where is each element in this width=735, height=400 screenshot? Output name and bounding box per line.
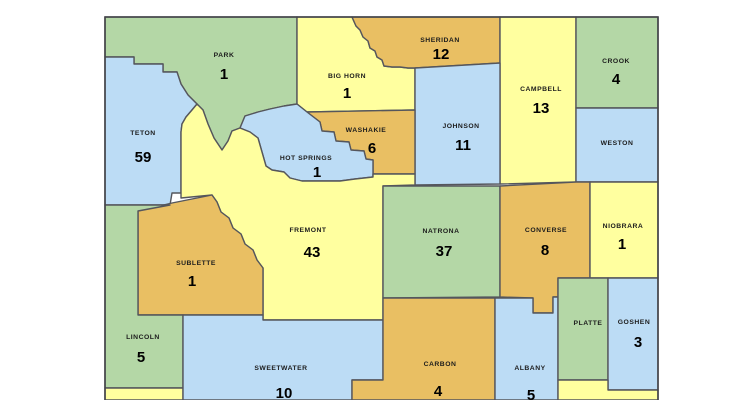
county-value-sublette: 1	[188, 273, 196, 290]
county-label-converse: CONVERSE	[525, 227, 567, 234]
county-value-washakie: 6	[368, 140, 376, 157]
county-label-fremont: FREMONT	[289, 227, 326, 234]
county-label-washakie: WASHAKIE	[346, 127, 387, 134]
county-niobrara[interactable]	[590, 182, 658, 278]
county-value-natrona: 37	[436, 243, 453, 260]
county-value-park: 1	[220, 66, 228, 83]
county-label-teton: TETON	[130, 130, 155, 137]
wyoming-county-map: PARK1TETON59BIG HORN1SHERIDAN12CAMPBELL1…	[0, 0, 735, 400]
county-value-sweetwater: 10	[276, 385, 293, 400]
county-uinta[interactable]	[105, 388, 183, 400]
county-value-johnson: 11	[455, 137, 471, 154]
county-label-platte: PLATTE	[574, 320, 603, 327]
county-value-sheridan: 12	[433, 46, 450, 63]
county-label-campbell: CAMPBELL	[520, 86, 562, 93]
county-label-crook: CROOK	[602, 58, 630, 65]
county-label-sheridan: SHERIDAN	[420, 37, 460, 44]
county-value-goshen: 3	[634, 334, 642, 351]
county-label-goshen: GOSHEN	[618, 319, 650, 326]
county-value-hot-springs: 1	[313, 164, 321, 181]
county-label-weston: WESTON	[601, 140, 634, 147]
county-value-teton: 59	[135, 149, 152, 166]
county-label-big-horn: BIG HORN	[328, 73, 366, 80]
county-label-albany: ALBANY	[514, 365, 545, 372]
county-label-sweetwater: SWEETWATER	[254, 365, 307, 372]
county-label-carbon: CARBON	[424, 361, 457, 368]
county-natrona[interactable]	[383, 186, 500, 298]
county-value-carbon: 4	[434, 383, 443, 400]
county-platte[interactable]	[558, 278, 608, 380]
county-label-lincoln: LINCOLN	[126, 334, 160, 341]
county-value-campbell: 13	[533, 100, 550, 117]
map-canvas: PARK1TETON59BIG HORN1SHERIDAN12CAMPBELL1…	[0, 0, 735, 400]
county-label-johnson: JOHNSON	[442, 123, 479, 130]
county-value-niobrara: 1	[618, 236, 626, 253]
county-label-sublette: SUBLETTE	[176, 260, 216, 267]
county-albany[interactable]	[495, 297, 558, 400]
county-value-converse: 8	[541, 242, 549, 259]
county-label-natrona: NATRONA	[423, 228, 460, 235]
county-value-albany: 5	[527, 387, 535, 400]
county-label-hot-springs: HOT SPRINGS	[280, 155, 332, 162]
county-value-crook: 4	[612, 71, 621, 88]
county-value-big-horn: 1	[343, 85, 351, 102]
county-value-lincoln: 5	[137, 349, 145, 366]
county-label-niobrara: NIOBRARA	[603, 223, 644, 230]
county-value-fremont: 43	[304, 244, 321, 261]
county-label-park: PARK	[214, 52, 235, 59]
